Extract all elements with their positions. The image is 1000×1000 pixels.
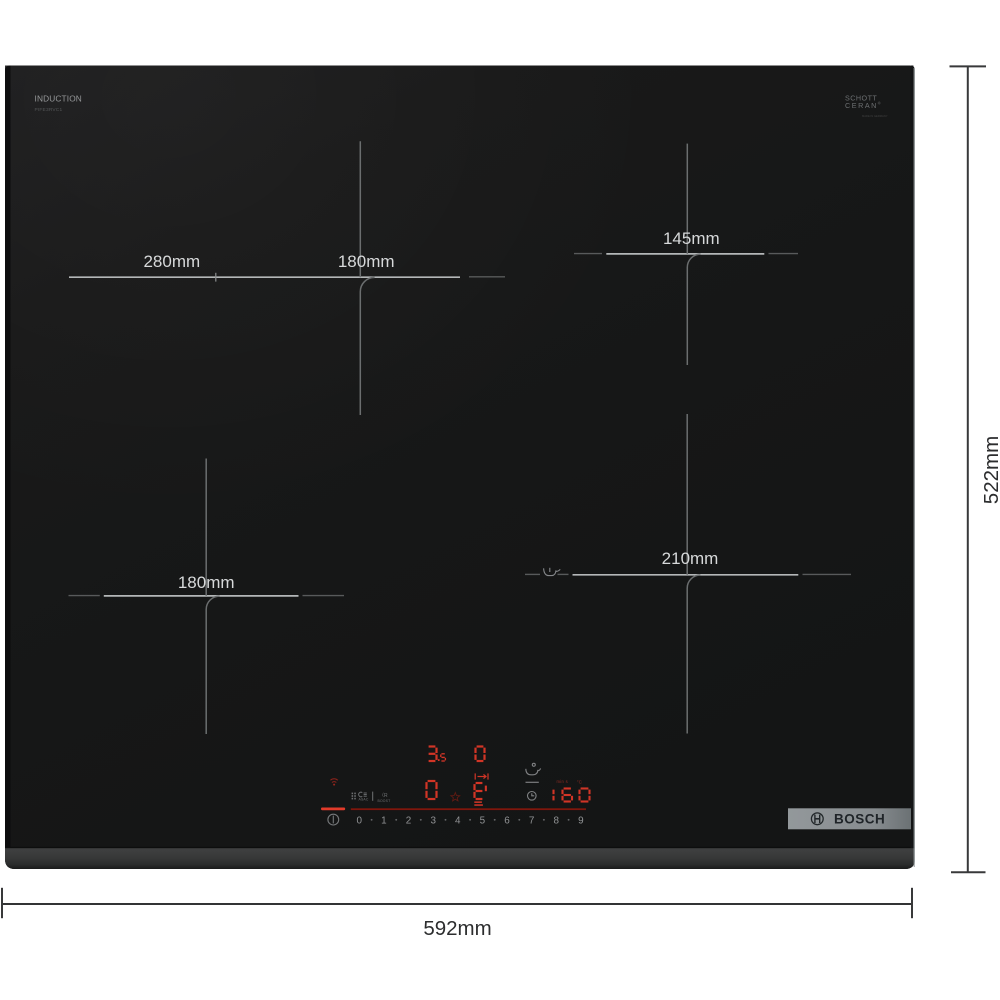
svg-text:4: 4 [455,815,461,826]
svg-text:280mm: 280mm [143,252,200,271]
svg-text:®: ® [878,101,881,106]
svg-text:5: 5 [480,815,486,826]
svg-text:9: 9 [578,815,584,826]
svg-text:7: 7 [529,815,535,826]
svg-text:180mm: 180mm [178,573,235,592]
svg-text:6: 6 [504,815,510,826]
svg-text:CERAN: CERAN [845,101,878,110]
svg-text:522mm: 522mm [980,436,1000,504]
svg-text:1: 1 [381,815,387,826]
svg-text:BOOST: BOOST [378,799,391,803]
svg-text:210mm: 210mm [662,549,719,568]
svg-text:BOSCH: BOSCH [834,812,885,827]
svg-text:3: 3 [430,815,436,826]
svg-text:592mm: 592mm [423,917,491,940]
svg-text:min s: min s [557,779,569,784]
svg-text:INDUCTION: INDUCTION [35,94,82,104]
svg-text:0: 0 [357,815,363,826]
svg-text:145mm: 145mm [663,229,720,248]
svg-text:°C: °C [577,779,583,784]
svg-text:180mm: 180mm [338,252,395,271]
svg-text:8: 8 [554,815,560,826]
svg-text:2: 2 [406,815,412,826]
svg-text:MADE IN GERMANY: MADE IN GERMANY [862,114,888,118]
svg-text:PIFE3RVC1: PIFE3RVC1 [35,107,63,113]
svg-text:ASAC: ASAC [359,798,369,802]
